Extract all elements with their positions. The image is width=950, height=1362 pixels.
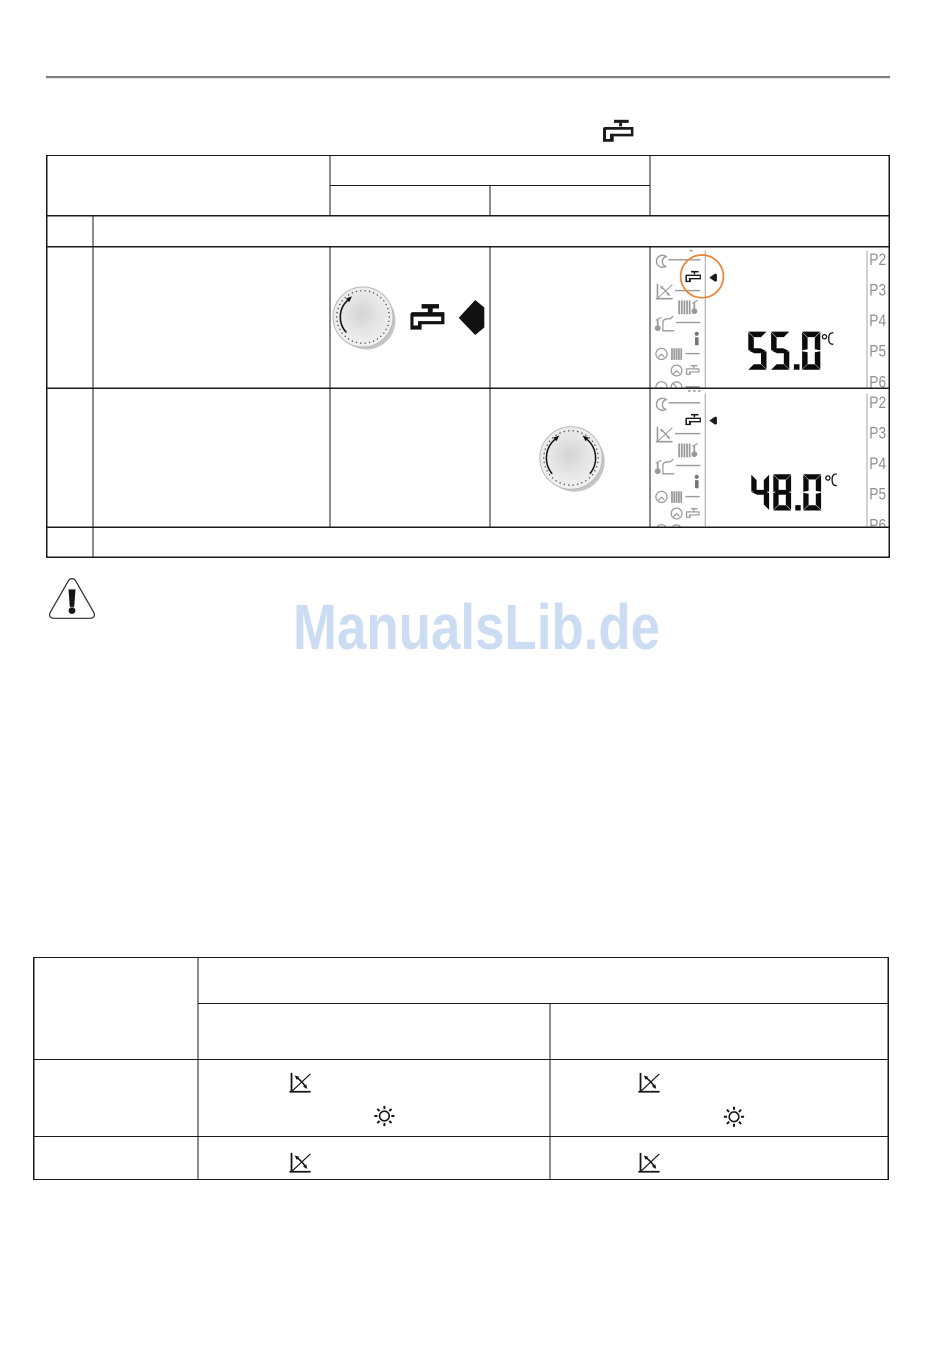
svg-text:P2: P2 (869, 250, 886, 269)
svg-text:P4: P4 (869, 311, 886, 330)
svg-text:P4: P4 (869, 454, 886, 473)
svg-text:P2: P2 (869, 393, 886, 412)
svg-text:P3: P3 (869, 281, 886, 300)
svg-text:P5: P5 (869, 485, 886, 504)
svg-text:P3: P3 (869, 424, 886, 443)
svg-text:P5: P5 (869, 342, 886, 361)
svg-text:ManualsLib.de: ManualsLib.de (293, 591, 660, 663)
